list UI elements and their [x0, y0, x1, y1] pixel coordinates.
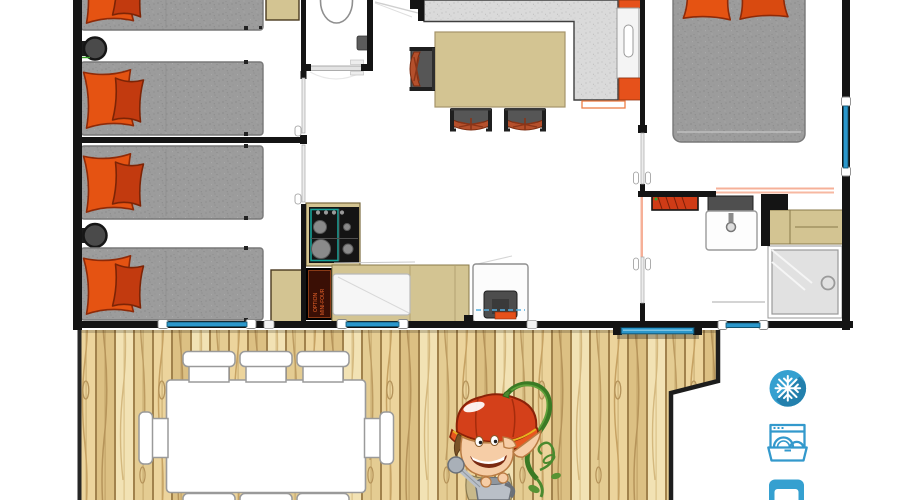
svg-text:OPTION: OPTION: [313, 292, 319, 312]
svg-text:MINI-FOUR: MINI-FOUR: [320, 288, 326, 315]
